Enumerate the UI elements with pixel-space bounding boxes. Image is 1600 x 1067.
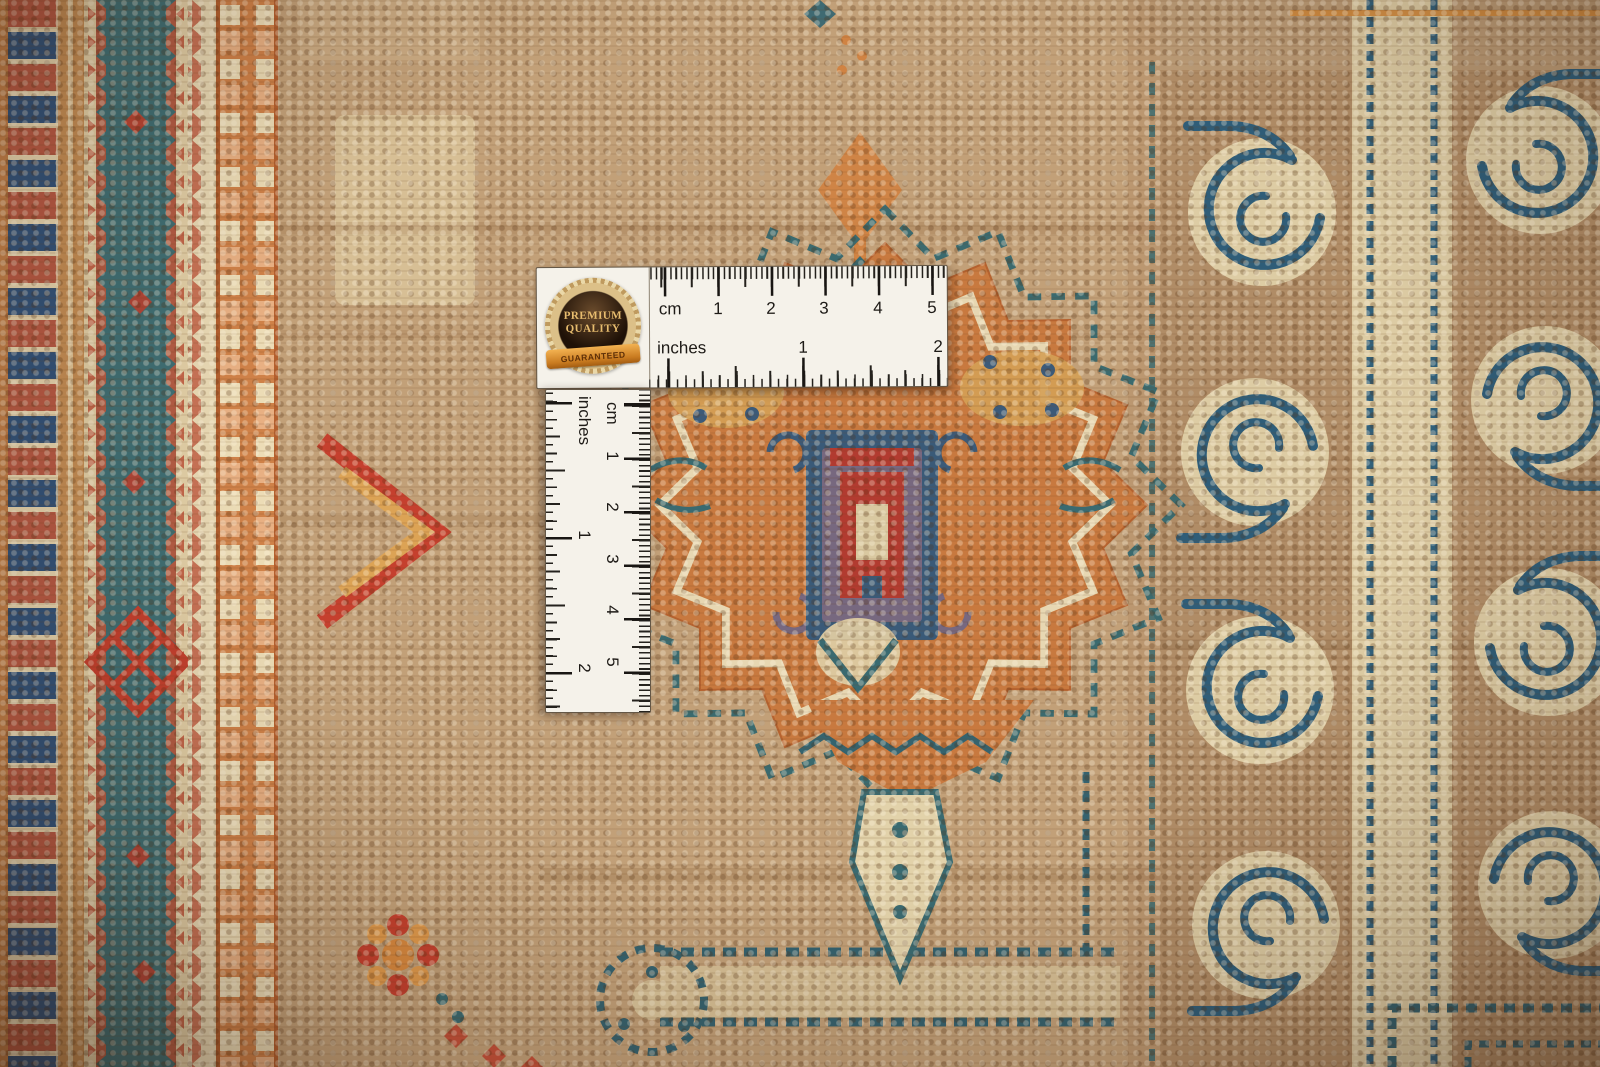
- cm-number: 1: [602, 451, 622, 460]
- rug-photo: PREMIUM QUALITY GUARANTEED cm 1 2 3 4 5: [0, 0, 1600, 1067]
- cm-number: 4: [602, 605, 622, 614]
- cm-number: 5: [602, 657, 622, 666]
- horizontal-ruler-scale: cm 1 2 3 4 5 inches 1 2: [649, 266, 948, 388]
- inch-number: 2: [933, 337, 943, 357]
- inch-number: 2: [574, 663, 594, 672]
- cm-major-ticks: [624, 390, 650, 712]
- quality-badge: PREMIUM QUALITY GUARANTEED: [537, 267, 651, 388]
- inch-number: 1: [574, 530, 594, 539]
- vertical-ruler: cm 1 2 3 4 5 inches 1 2: [546, 390, 650, 712]
- inch-major-ticks: [649, 357, 947, 388]
- cm-unit-label: cm: [602, 402, 622, 425]
- cm-number: 1: [713, 299, 723, 319]
- cm-number: 3: [819, 299, 829, 319]
- badge-ribbon-text: GUARANTEED: [560, 349, 626, 364]
- rug-pattern: [0, 0, 1600, 1067]
- badge-line1: PREMIUM: [564, 309, 623, 321]
- cm-number: 2: [766, 299, 776, 319]
- cm-major-ticks: [649, 266, 947, 297]
- horizontal-ruler: PREMIUM QUALITY GUARANTEED cm 1 2 3 4 5: [536, 265, 949, 389]
- inch-major-ticks: [546, 390, 572, 712]
- cm-number: 2: [602, 502, 622, 511]
- vertical-ruler-scale: cm 1 2 3 4 5 inches 1 2: [546, 390, 650, 712]
- quality-seal: PREMIUM QUALITY GUARANTEED: [545, 278, 642, 375]
- cm-number: 3: [602, 554, 622, 563]
- cm-number: 5: [927, 298, 937, 318]
- inch-unit-label: inches: [657, 338, 706, 358]
- inch-unit-label: inches: [574, 396, 594, 445]
- inch-number: 1: [798, 338, 808, 358]
- badge-line2: QUALITY: [566, 322, 621, 334]
- left-border: [0, 0, 278, 1067]
- cm-unit-label: cm: [659, 299, 682, 319]
- cm-number: 4: [873, 298, 883, 318]
- vertical-ruler-face: cm 1 2 3 4 5 inches 1 2: [545, 389, 651, 713]
